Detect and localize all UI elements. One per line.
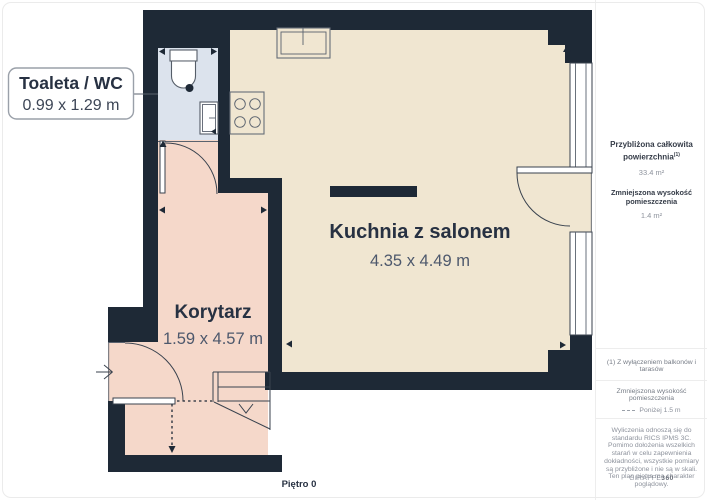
wc-dimensions: 0.99 x 1.29 m	[23, 97, 120, 114]
total-area-value: 33.4 m²	[596, 168, 707, 177]
floor-plan: Kuchnia z salonem 4.35 x 4.49 m Korytarz…	[0, 0, 595, 500]
corridor-dimensions: 1.59 x 4.57 m	[163, 330, 263, 348]
window-icon	[570, 232, 592, 335]
wc-callout: Toaleta / WC 0.99 x 1.29 m	[9, 68, 159, 119]
balcony-door-opening-floor	[570, 167, 592, 232]
area-summary: Przybliżona całkowitapowierzchnia(1) 33.…	[596, 139, 707, 220]
reduced-height-label: Zmniejszona wysokość pomieszczenia	[596, 188, 707, 206]
wc-label: Toaleta / WC	[19, 73, 123, 93]
giraffe360-logo: GIRAFFE360	[596, 475, 707, 482]
kitchen-island	[330, 186, 417, 197]
total-area-label: Przybliżona całkowitapowierzchnia(1)	[596, 139, 707, 163]
kitchen-label: Kuchnia z salonem	[329, 221, 510, 243]
kitchen-dimensions: 4.35 x 4.49 m	[370, 252, 470, 270]
divider	[596, 348, 707, 349]
floor-plan-page: Kuchnia z salonem 4.35 x 4.49 m Korytarz…	[0, 0, 707, 500]
reduced-height-value: 1.4 m²	[596, 211, 707, 220]
kitchen-sink-icon	[277, 28, 330, 58]
wc-sink-icon	[200, 102, 218, 135]
reduced-height-legend: Zmniejszona wysokość pomieszczenia Poniż…	[599, 388, 704, 414]
floor-label: Piętro 0	[282, 479, 317, 490]
footnote-mark: (1)	[674, 152, 680, 158]
divider	[596, 380, 707, 381]
dashed-line-icon	[622, 410, 635, 411]
legend-value: Poniżej 1.5 m	[639, 407, 680, 414]
legend-label: Zmniejszona wysokość pomieszczenia	[599, 388, 704, 402]
divider	[596, 418, 707, 419]
stove-icon	[230, 92, 264, 134]
corridor-label: Korytarz	[174, 302, 251, 323]
window-icon	[570, 63, 592, 168]
info-sidebar: Przybliżona całkowitapowierzchnia(1) 33.…	[595, 0, 707, 500]
area-footnote: (1) Z wyłączeniem balkonów i tarasów	[599, 359, 704, 373]
